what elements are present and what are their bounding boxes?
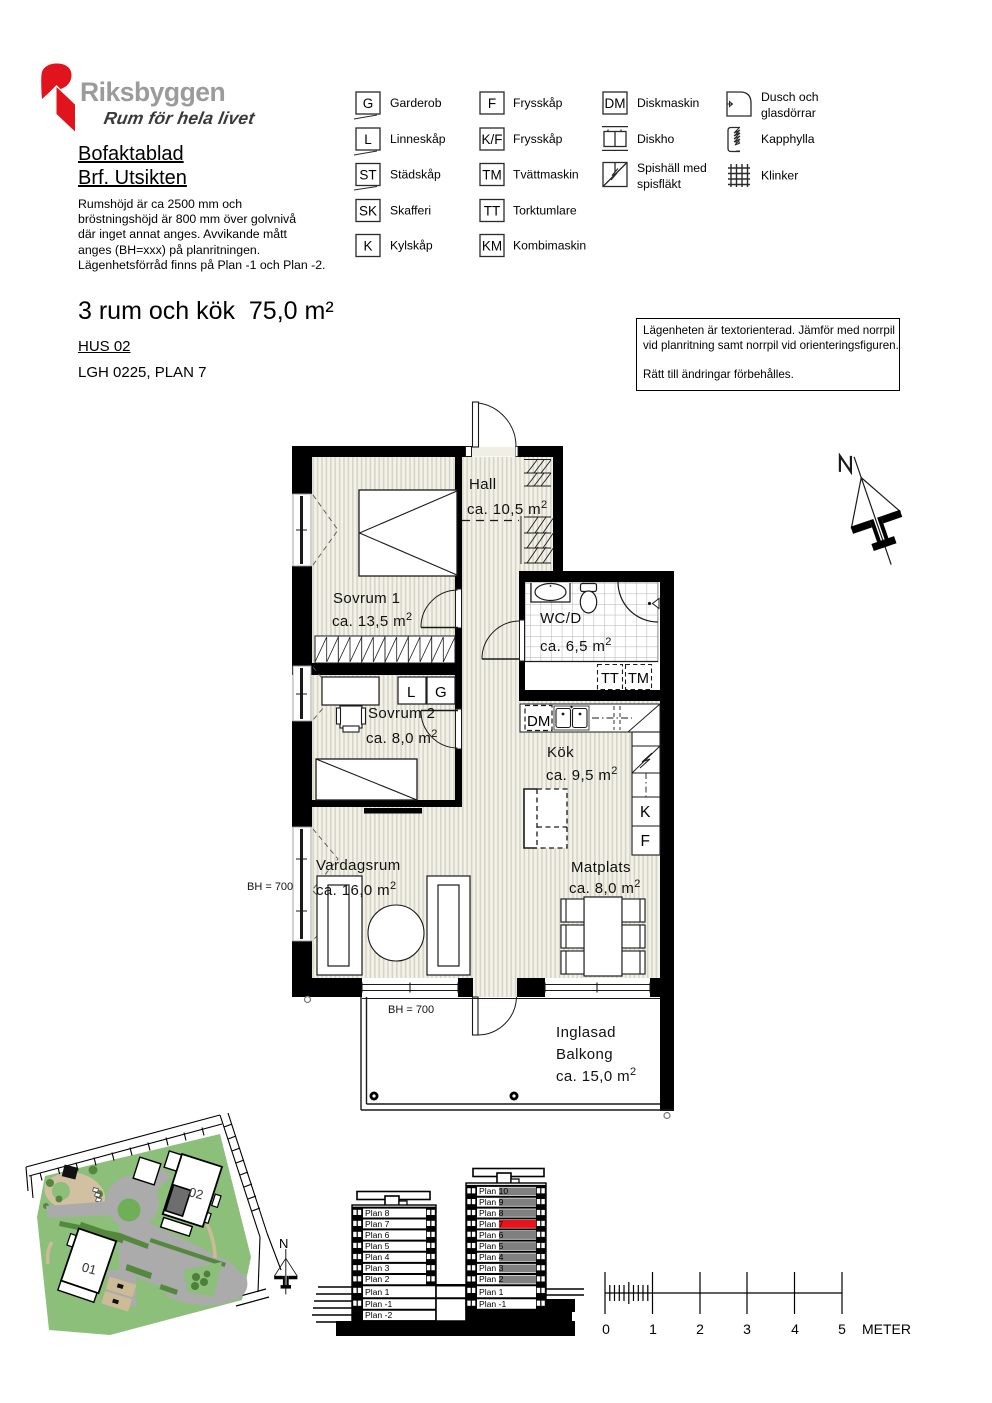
- svg-text:BH = 700: BH = 700: [247, 881, 293, 893]
- svg-text:Plan 1: Plan 1: [479, 1287, 504, 1297]
- svg-text:Plan 8: Plan 8: [365, 1208, 390, 1218]
- svg-text:ca. 13,5 m2: ca. 13,5 m2: [332, 611, 413, 630]
- svg-text:4: 4: [791, 1321, 799, 1337]
- svg-text:F: F: [641, 833, 650, 850]
- svg-text:Plan 3: Plan 3: [479, 1263, 504, 1273]
- svg-text:WC/D: WC/D: [540, 610, 582, 627]
- svg-text:Plan 4: Plan 4: [479, 1252, 504, 1262]
- svg-text:Plan -1: Plan -1: [365, 1299, 392, 1309]
- svg-text:Balkong: Balkong: [556, 1046, 613, 1063]
- svg-text:Kök: Kök: [547, 744, 574, 761]
- svg-text:Vardagsrum: Vardagsrum: [316, 857, 401, 874]
- svg-text:2: 2: [696, 1321, 704, 1337]
- svg-text:ca. 8,0 m2: ca. 8,0 m2: [366, 728, 438, 747]
- svg-text:ca. 6,5 m2: ca. 6,5 m2: [540, 636, 612, 655]
- svg-text:Inglasad: Inglasad: [556, 1024, 616, 1041]
- svg-text:Plan 6: Plan 6: [479, 1230, 504, 1240]
- svg-text:Plan -2: Plan -2: [365, 1310, 392, 1320]
- svg-text:BH = 700: BH = 700: [388, 1004, 434, 1016]
- svg-text:Plan 5: Plan 5: [479, 1241, 504, 1251]
- svg-text:Plan 4: Plan 4: [365, 1252, 390, 1262]
- svg-text:Plan 7: Plan 7: [365, 1219, 390, 1229]
- svg-text:Plan 6: Plan 6: [365, 1230, 390, 1240]
- svg-text:ca. 9,5 m2: ca. 9,5 m2: [546, 765, 618, 784]
- svg-text:0: 0: [602, 1321, 610, 1337]
- svg-text:TM: TM: [628, 671, 649, 687]
- svg-text:G: G: [435, 684, 447, 701]
- svg-text:Matplats: Matplats: [571, 859, 631, 876]
- svg-text:DM: DM: [527, 713, 550, 730]
- svg-text:Plan 8: Plan 8: [479, 1208, 504, 1218]
- svg-text:ca. 8,0 m2: ca. 8,0 m2: [569, 878, 641, 897]
- svg-text:Sovrum 2: Sovrum 2: [368, 705, 435, 722]
- svg-text:Plan 1: Plan 1: [365, 1287, 390, 1297]
- svg-text:ca. 16,0 m2: ca. 16,0 m2: [316, 880, 397, 899]
- svg-text:Plan -1: Plan -1: [479, 1299, 506, 1309]
- svg-text:5: 5: [838, 1321, 846, 1337]
- svg-text:K: K: [640, 804, 651, 821]
- svg-text:ca. 10,5 m2: ca. 10,5 m2: [467, 499, 548, 518]
- svg-text:Plan 2: Plan 2: [365, 1274, 390, 1284]
- svg-text:L: L: [407, 684, 415, 701]
- svg-text:TT: TT: [601, 671, 619, 687]
- svg-text:Plan 5: Plan 5: [365, 1241, 390, 1251]
- svg-text:ca. 15,0 m2: ca. 15,0 m2: [556, 1066, 637, 1085]
- svg-text:Plan 7: Plan 7: [479, 1219, 504, 1229]
- svg-text:Plan 10: Plan 10: [479, 1186, 508, 1196]
- svg-text:Plan 3: Plan 3: [365, 1263, 390, 1273]
- svg-text:N: N: [279, 1236, 288, 1251]
- svg-text:3: 3: [743, 1321, 751, 1337]
- svg-text:Sovrum 1: Sovrum 1: [333, 590, 400, 607]
- svg-text:1: 1: [649, 1321, 657, 1337]
- svg-text:Hall: Hall: [469, 476, 496, 493]
- svg-text:Plan 2: Plan 2: [479, 1274, 504, 1284]
- svg-text:Plan 9: Plan 9: [479, 1197, 504, 1207]
- svg-text:METER: METER: [862, 1321, 911, 1337]
